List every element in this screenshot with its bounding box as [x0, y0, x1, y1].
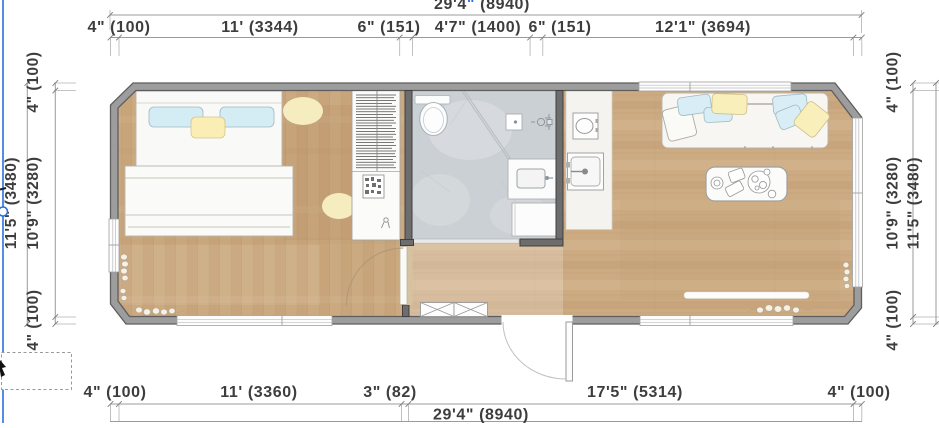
- svg-text:11' (3344): 11' (3344): [221, 19, 298, 36]
- svg-text:4" (100): 4" (100): [25, 51, 42, 112]
- svg-text:29'4" (8940): 29'4" (8940): [433, 407, 529, 424]
- svg-text:10'9" (3280): 10'9" (3280): [25, 156, 42, 249]
- svg-text:29'4" (8940): 29'4" (8940): [434, 0, 530, 13]
- svg-text:4" (100): 4" (100): [83, 384, 146, 401]
- svg-text:11'5" (3480): 11'5" (3480): [906, 157, 923, 249]
- svg-text:4" (100): 4" (100): [87, 19, 150, 36]
- svg-text:4" (100): 4" (100): [885, 51, 902, 112]
- svg-text:3" (82): 3" (82): [363, 384, 417, 401]
- svg-text:17'5" (5314): 17'5" (5314): [587, 384, 683, 401]
- svg-text:4" (100): 4" (100): [25, 289, 42, 350]
- svg-text:4'7" (1400): 4'7" (1400): [435, 19, 521, 36]
- svg-text:4" (100): 4" (100): [827, 384, 890, 401]
- svg-text:10'9" (3280): 10'9" (3280): [885, 156, 902, 249]
- svg-text:6" (151): 6" (151): [528, 19, 591, 36]
- svg-text:12'1" (3694): 12'1" (3694): [655, 19, 751, 36]
- svg-text:11' (3360): 11' (3360): [220, 384, 297, 401]
- svg-text:11'5" (3480): 11'5" (3480): [3, 157, 20, 249]
- svg-text:6" (151): 6" (151): [357, 19, 420, 36]
- svg-text:4" (100): 4" (100): [885, 289, 902, 350]
